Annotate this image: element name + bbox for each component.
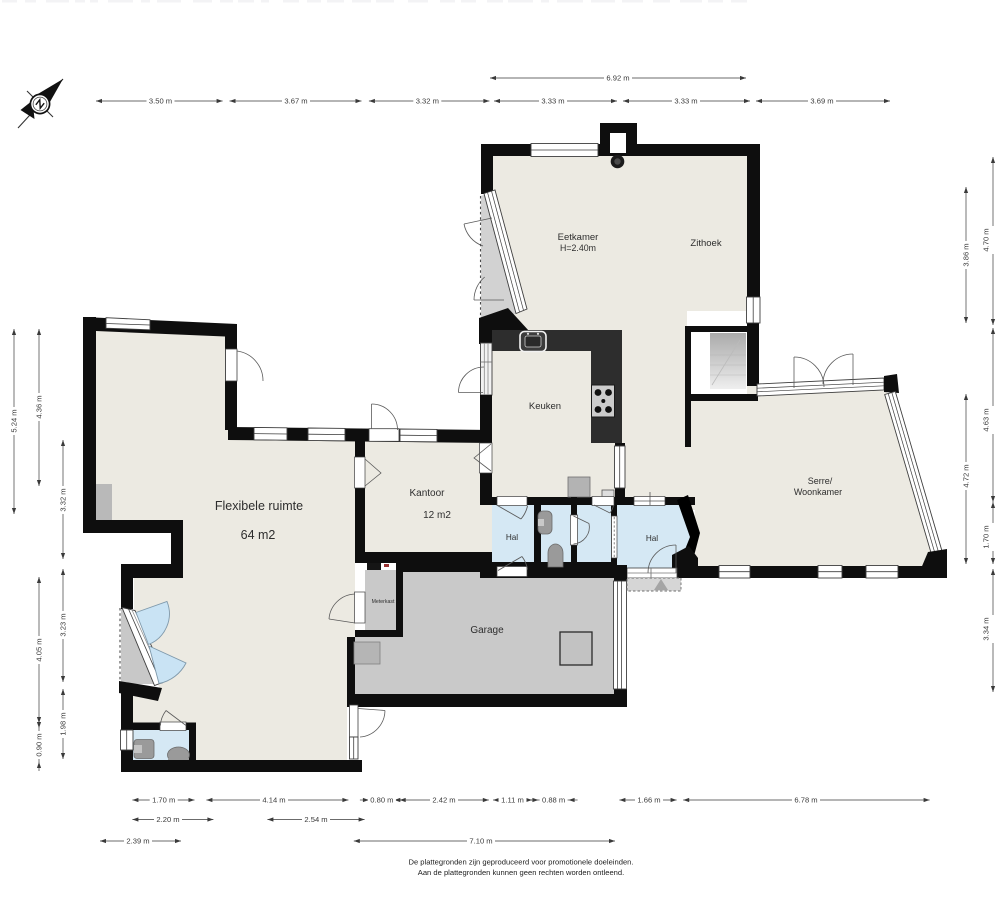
svg-text:1.70 m: 1.70 m bbox=[982, 525, 991, 548]
svg-text:Woonkamer: Woonkamer bbox=[794, 487, 842, 497]
svg-text:2.42 m: 2.42 m bbox=[432, 796, 455, 805]
svg-text:Kantoor: Kantoor bbox=[409, 488, 445, 499]
svg-text:4.63 m: 4.63 m bbox=[982, 408, 991, 431]
svg-text:Hal: Hal bbox=[506, 533, 518, 542]
svg-text:3.50 m: 3.50 m bbox=[149, 97, 172, 106]
svg-text:Flexibele ruimte: Flexibele ruimte bbox=[215, 499, 303, 513]
svg-text:0.88 m: 0.88 m bbox=[542, 796, 565, 805]
svg-text:3.33 m: 3.33 m bbox=[674, 97, 697, 106]
svg-text:Meterkast: Meterkast bbox=[372, 599, 395, 605]
svg-text:4.36 m: 4.36 m bbox=[35, 395, 44, 418]
svg-text:2.20 m: 2.20 m bbox=[156, 815, 179, 824]
svg-text:3.32 m: 3.32 m bbox=[59, 488, 68, 511]
svg-text:1.11 m: 1.11 m bbox=[501, 796, 524, 805]
svg-text:2.54 m: 2.54 m bbox=[304, 815, 327, 824]
svg-text:3.33 m: 3.33 m bbox=[541, 97, 564, 106]
svg-text:2.39 m: 2.39 m bbox=[126, 837, 149, 846]
svg-text:De plattegronden zijn geproduc: De plattegronden zijn geproduceerd voor … bbox=[408, 858, 633, 867]
svg-text:Aan de plattegronden kunnen ge: Aan de plattegronden kunnen geen rechten… bbox=[418, 868, 624, 877]
svg-text:Eetkamer: Eetkamer bbox=[558, 232, 599, 243]
svg-text:5.24 m: 5.24 m bbox=[10, 409, 19, 432]
svg-text:3.86 m: 3.86 m bbox=[962, 243, 971, 266]
svg-text:3.34 m: 3.34 m bbox=[982, 617, 991, 640]
svg-text:3.67 m: 3.67 m bbox=[284, 97, 307, 106]
svg-text:Zithoek: Zithoek bbox=[690, 238, 721, 249]
svg-text:Hal: Hal bbox=[646, 534, 658, 543]
svg-text:6.78 m: 6.78 m bbox=[794, 796, 817, 805]
svg-text:Serre/: Serre/ bbox=[808, 476, 833, 486]
svg-text:3.69 m: 3.69 m bbox=[810, 97, 833, 106]
svg-text:H=2.40m: H=2.40m bbox=[560, 243, 596, 253]
svg-text:64 m2: 64 m2 bbox=[241, 528, 276, 542]
svg-text:6.92 m: 6.92 m bbox=[606, 74, 629, 83]
svg-text:4.14 m: 4.14 m bbox=[262, 796, 285, 805]
svg-text:Keuken: Keuken bbox=[529, 401, 561, 412]
svg-text:4.72 m: 4.72 m bbox=[962, 464, 971, 487]
svg-text:0.90 m: 0.90 m bbox=[35, 733, 44, 756]
svg-text:1.66 m: 1.66 m bbox=[637, 796, 660, 805]
svg-text:4.05 m: 4.05 m bbox=[35, 638, 44, 661]
svg-text:1.98 m: 1.98 m bbox=[59, 712, 68, 735]
svg-text:7.10 m: 7.10 m bbox=[469, 837, 492, 846]
svg-text:Garage: Garage bbox=[470, 625, 504, 636]
svg-text:3.32 m: 3.32 m bbox=[416, 97, 439, 106]
svg-text:1.70 m: 1.70 m bbox=[152, 796, 175, 805]
svg-text:3.23 m: 3.23 m bbox=[59, 613, 68, 636]
svg-text:12 m2: 12 m2 bbox=[423, 510, 451, 521]
svg-text:0.80 m: 0.80 m bbox=[370, 796, 393, 805]
svg-text:4.70 m: 4.70 m bbox=[982, 228, 991, 251]
